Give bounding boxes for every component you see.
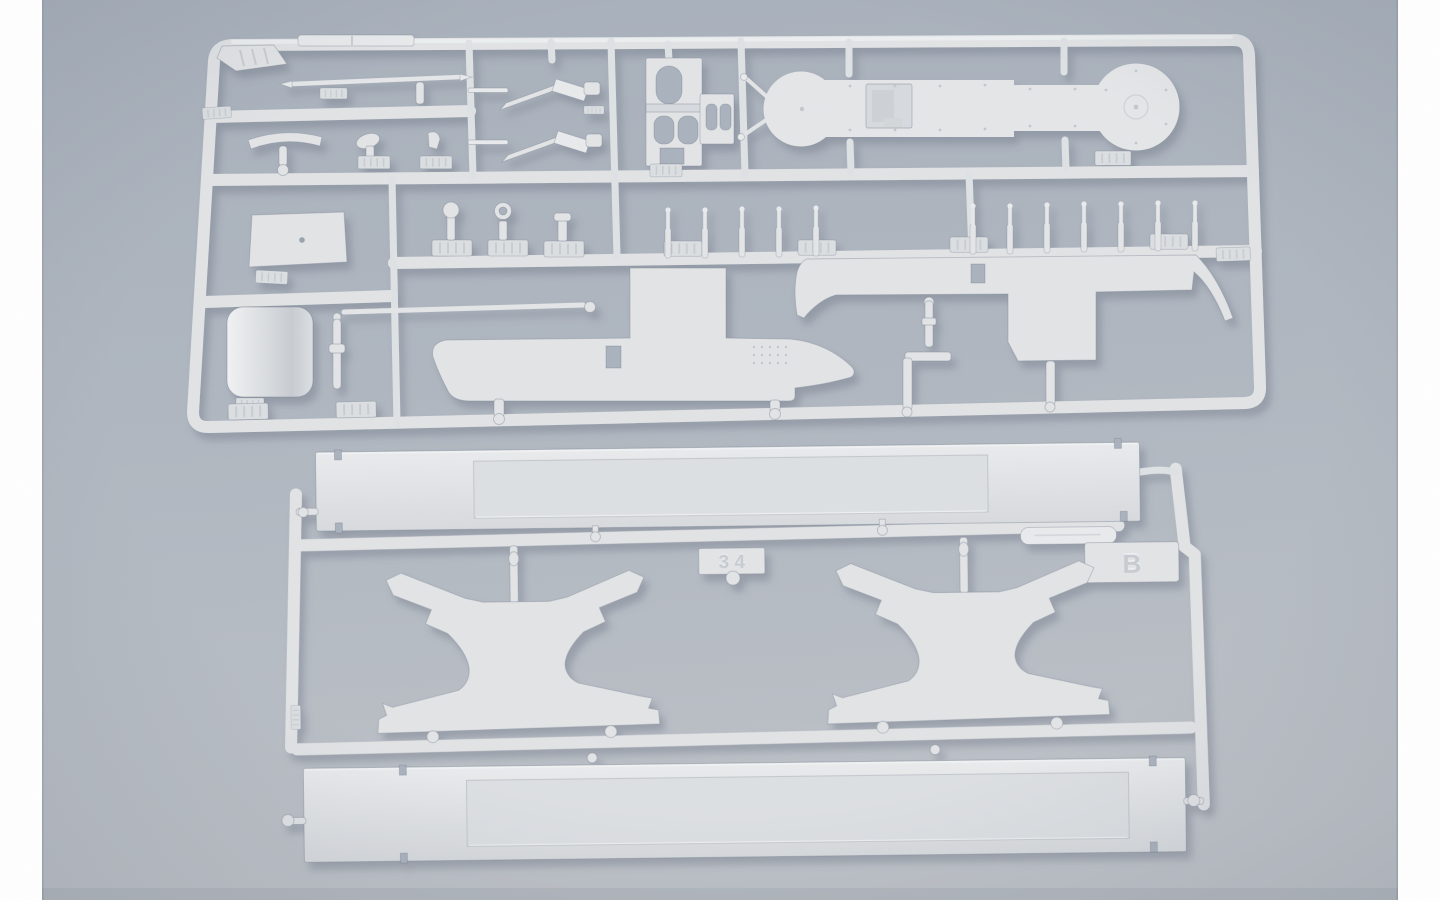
film-grain-overlay bbox=[42, 0, 1398, 900]
product-photo: 3 4 3 4 B B bbox=[0, 0, 1440, 900]
screenshot: 3 4 3 4 B B bbox=[0, 0, 1440, 900]
table-edge-shadow bbox=[42, 888, 1398, 900]
